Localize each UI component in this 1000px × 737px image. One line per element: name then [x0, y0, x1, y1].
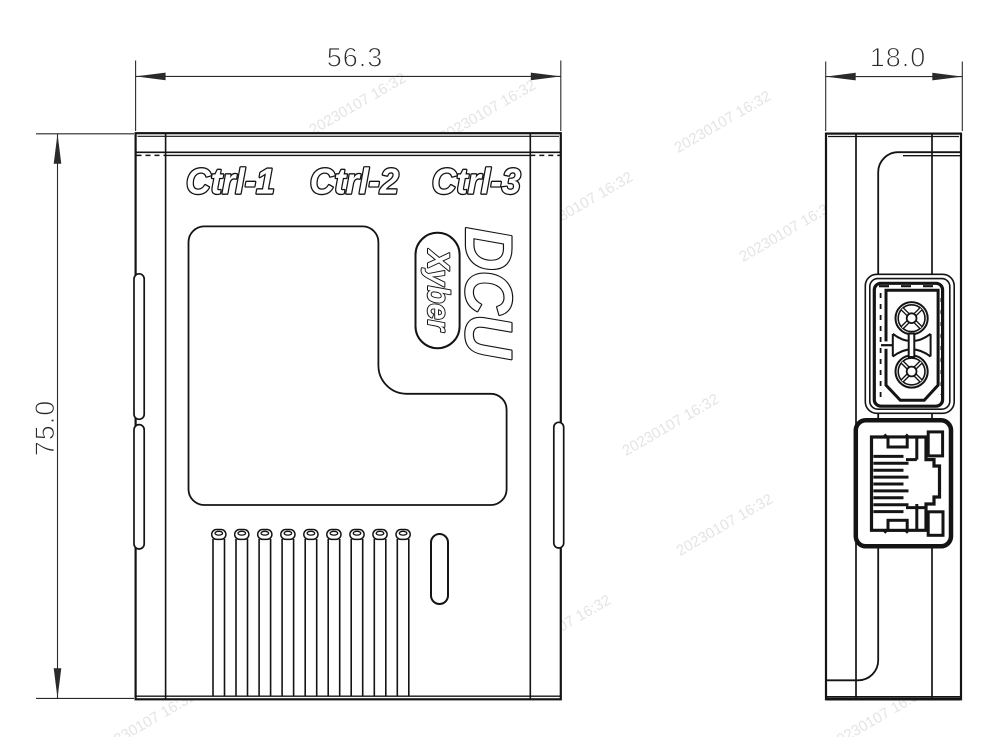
svg-text:18.0: 18.0 — [870, 43, 927, 73]
svg-text:Ctrl-1: Ctrl-1 — [186, 161, 275, 202]
svg-text:Ctrl-2: Ctrl-2 — [310, 161, 399, 202]
svg-text:75.0: 75.0 — [30, 400, 60, 457]
svg-text:Xyber: Xyber — [421, 248, 456, 333]
svg-text:DCU: DCU — [452, 227, 526, 360]
svg-text:56.3: 56.3 — [327, 43, 384, 73]
svg-text:Ctrl-3: Ctrl-3 — [432, 161, 521, 202]
